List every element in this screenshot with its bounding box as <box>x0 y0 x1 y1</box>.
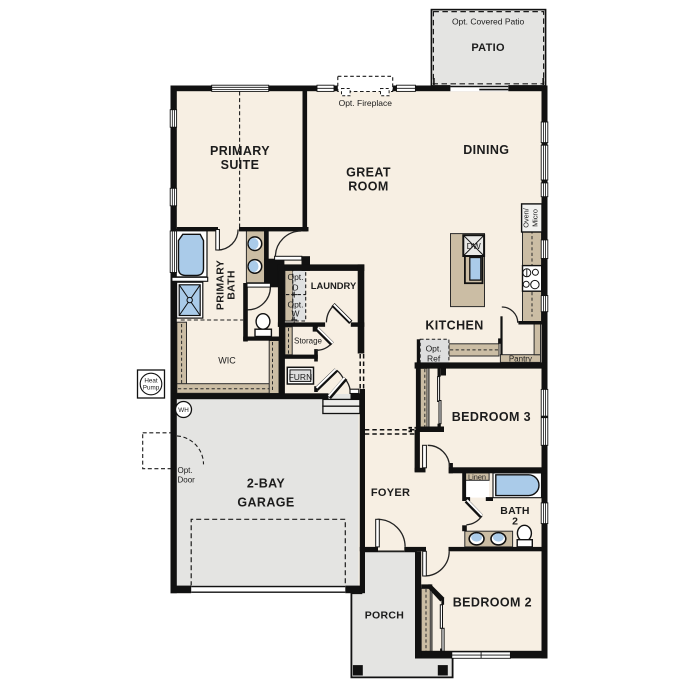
svg-text:WH: WH <box>178 407 189 414</box>
svg-text:Opt.: Opt. <box>287 272 303 282</box>
svg-text:GREAT: GREAT <box>346 166 391 180</box>
svg-text:Storage: Storage <box>294 336 323 345</box>
svg-text:FURN: FURN <box>289 372 313 382</box>
svg-text:Heat: Heat <box>144 378 158 385</box>
svg-text:2: 2 <box>512 516 518 528</box>
svg-text:PRIMARY: PRIMARY <box>210 144 270 158</box>
svg-text:Pump: Pump <box>143 385 160 392</box>
svg-text:DW: DW <box>467 241 481 251</box>
svg-text:Door: Door <box>178 476 196 485</box>
svg-text:LAUNDRY: LAUNDRY <box>311 280 357 291</box>
svg-text:ROOM: ROOM <box>348 180 389 194</box>
svg-text:Pantry: Pantry <box>509 354 532 363</box>
svg-text:Opt. Covered Patio: Opt. Covered Patio <box>452 17 525 27</box>
svg-text:Ref: Ref <box>427 354 441 364</box>
svg-text:BEDROOM 2: BEDROOM 2 <box>453 595 532 609</box>
svg-text:Oven/: Oven/ <box>522 207 531 227</box>
svg-text:D: D <box>292 283 298 293</box>
svg-text:GARAGE: GARAGE <box>237 495 294 509</box>
svg-text:Linen: Linen <box>468 472 486 481</box>
svg-text:Opt.: Opt. <box>426 344 442 354</box>
svg-text:Opt. Fireplace: Opt. Fireplace <box>339 98 393 108</box>
svg-text:BEDROOM 3: BEDROOM 3 <box>452 410 531 424</box>
svg-text:PATIO: PATIO <box>471 42 505 54</box>
svg-text:WIC: WIC <box>218 356 236 366</box>
svg-text:SUITE: SUITE <box>221 158 260 172</box>
svg-text:W: W <box>291 309 299 319</box>
svg-text:DINING: DINING <box>463 143 509 157</box>
svg-text:PORCH: PORCH <box>365 610 404 622</box>
svg-text:BATH: BATH <box>226 270 238 300</box>
svg-text:Micro: Micro <box>531 209 540 227</box>
svg-text:2-BAY: 2-BAY <box>247 477 286 491</box>
svg-text:KITCHEN: KITCHEN <box>425 318 483 332</box>
svg-text:Opt.: Opt. <box>178 466 193 475</box>
svg-text:FOYER: FOYER <box>371 487 410 499</box>
